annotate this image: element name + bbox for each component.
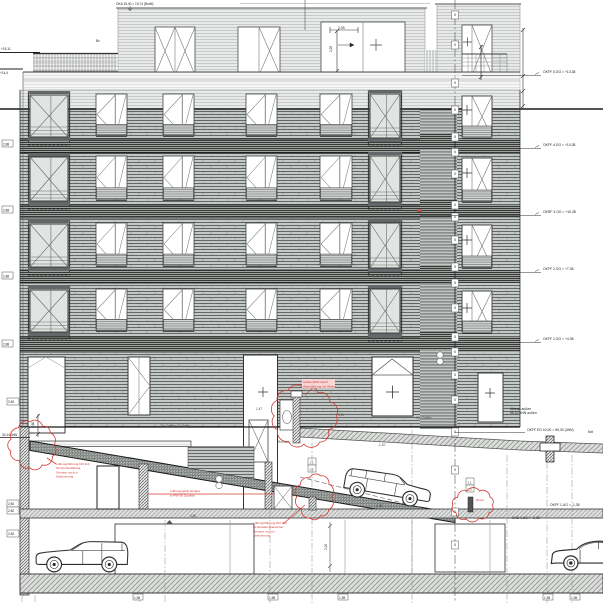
svg-text:55,10 üNN außen: 55,10 üNN außen <box>510 411 537 415</box>
svg-text:1,98: 1,98 <box>339 596 345 600</box>
svg-text:Abstimmung: Abstimmung <box>253 534 270 538</box>
svg-text:1,98: 1,98 <box>544 596 550 600</box>
svg-text:5: 5 <box>454 335 456 339</box>
svg-text:OKFF EG ±0,00 = 55,30 (üNN): OKFF EG ±0,00 = 55,30 (üNN) <box>527 428 574 432</box>
svg-text:5: 5 <box>454 203 456 207</box>
svg-text:5: 5 <box>454 468 456 472</box>
svg-text:2,88: 2,88 <box>3 343 9 347</box>
svg-text:5: 5 <box>454 172 456 176</box>
svg-text:Wandöffnung mit Wetter: Wandöffnung mit Wetter <box>303 385 336 389</box>
svg-text:2,60: 2,60 <box>8 502 14 506</box>
svg-text:OKFF 1.OG = +4,38: OKFF 1.OG = +4,38 <box>543 337 574 341</box>
svg-text:2,88: 2,88 <box>3 275 9 279</box>
svg-text:1,98: 1,98 <box>134 596 140 600</box>
svg-text:2,60: 2,60 <box>8 509 14 513</box>
svg-text:5: 5 <box>454 81 456 85</box>
svg-text:Bv: Bv <box>96 39 100 43</box>
svg-text:2,60: 2,60 <box>8 400 14 404</box>
svg-text:2,60: 2,60 <box>8 532 14 536</box>
svg-text:OKRF 3.OG = +10,38: OKRF 3.OG = +10,38 <box>543 210 576 214</box>
svg-text:2,26: 2,26 <box>329 46 333 52</box>
svg-text:+14,4: +14,4 <box>0 71 8 75</box>
svg-text:OKFF 4.OG = +10,38: OKFF 4.OG = +10,38 <box>543 143 576 147</box>
svg-text:2% Gefälle OK Belag: 2% Gefälle OK Belag <box>160 424 190 428</box>
svg-text:Rinne: Rinne <box>476 498 484 502</box>
svg-text:Lüftungsgerät auslass: Lüftungsgerät auslass <box>170 489 201 493</box>
svg-text:4,50: 4,50 <box>190 514 196 518</box>
svg-text:5% Gefälle: 5% Gefälle <box>416 416 432 420</box>
svg-text:5: 5 <box>454 398 456 402</box>
svg-text:+15,11: +15,11 <box>1 47 11 51</box>
svg-text:5: 5 <box>454 430 456 434</box>
svg-text:1,98: 1,98 <box>269 596 275 600</box>
svg-text:UKD 1.UG = -3,08: UKD 1.UG = -3,08 <box>512 516 540 520</box>
svg-text:5: 5 <box>454 373 456 377</box>
svg-text:OKA 15,40 = 15,74 (BmM): OKA 15,40 = 15,74 (BmM) <box>116 2 153 6</box>
svg-text:Außenluft/D durch: Außenluft/D durch <box>303 380 328 384</box>
svg-text:5: 5 <box>454 281 456 285</box>
svg-text:5: 5 <box>454 306 456 310</box>
svg-text:5: 5 <box>454 265 456 269</box>
svg-text:2,20: 2,20 <box>324 544 328 550</box>
svg-text:-1,10: -1,10 <box>378 443 385 447</box>
svg-text:5: 5 <box>454 238 456 242</box>
svg-text:in P06 60 Qualität: in P06 60 Qualität <box>170 494 195 498</box>
svg-text:Nxt: Nxt <box>588 430 593 434</box>
svg-text:1,1: 1,1 <box>468 481 473 485</box>
svg-text:5: 5 <box>454 150 456 154</box>
svg-text:-1,98: -1,98 <box>375 504 382 508</box>
svg-text:2,88: 2,88 <box>3 143 9 147</box>
svg-text:Abstimmung: Abstimmung <box>56 475 73 479</box>
svg-text:5: 5 <box>454 43 456 47</box>
svg-text:5: 5 <box>454 543 456 547</box>
svg-text:5: 5 <box>454 350 456 354</box>
svg-text:1,98: 1,98 <box>571 596 577 600</box>
svg-text:OKFF 1.UG = -1,38: OKFF 1.UG = -1,38 <box>550 503 580 507</box>
svg-text:5: 5 <box>454 108 456 112</box>
svg-text:OKFF 5.OG = +13,38: OKFF 5.OG = +13,38 <box>543 70 576 74</box>
svg-text:1,47: 1,47 <box>256 407 262 411</box>
svg-text:2,88: 2,88 <box>3 209 9 213</box>
svg-text:5: 5 <box>454 13 456 17</box>
svg-text:2,60: 2,60 <box>31 422 35 428</box>
svg-text:OKFF 2.OG = +7,38: OKFF 2.OG = +7,38 <box>543 267 574 271</box>
svg-text:5: 5 <box>454 135 456 139</box>
